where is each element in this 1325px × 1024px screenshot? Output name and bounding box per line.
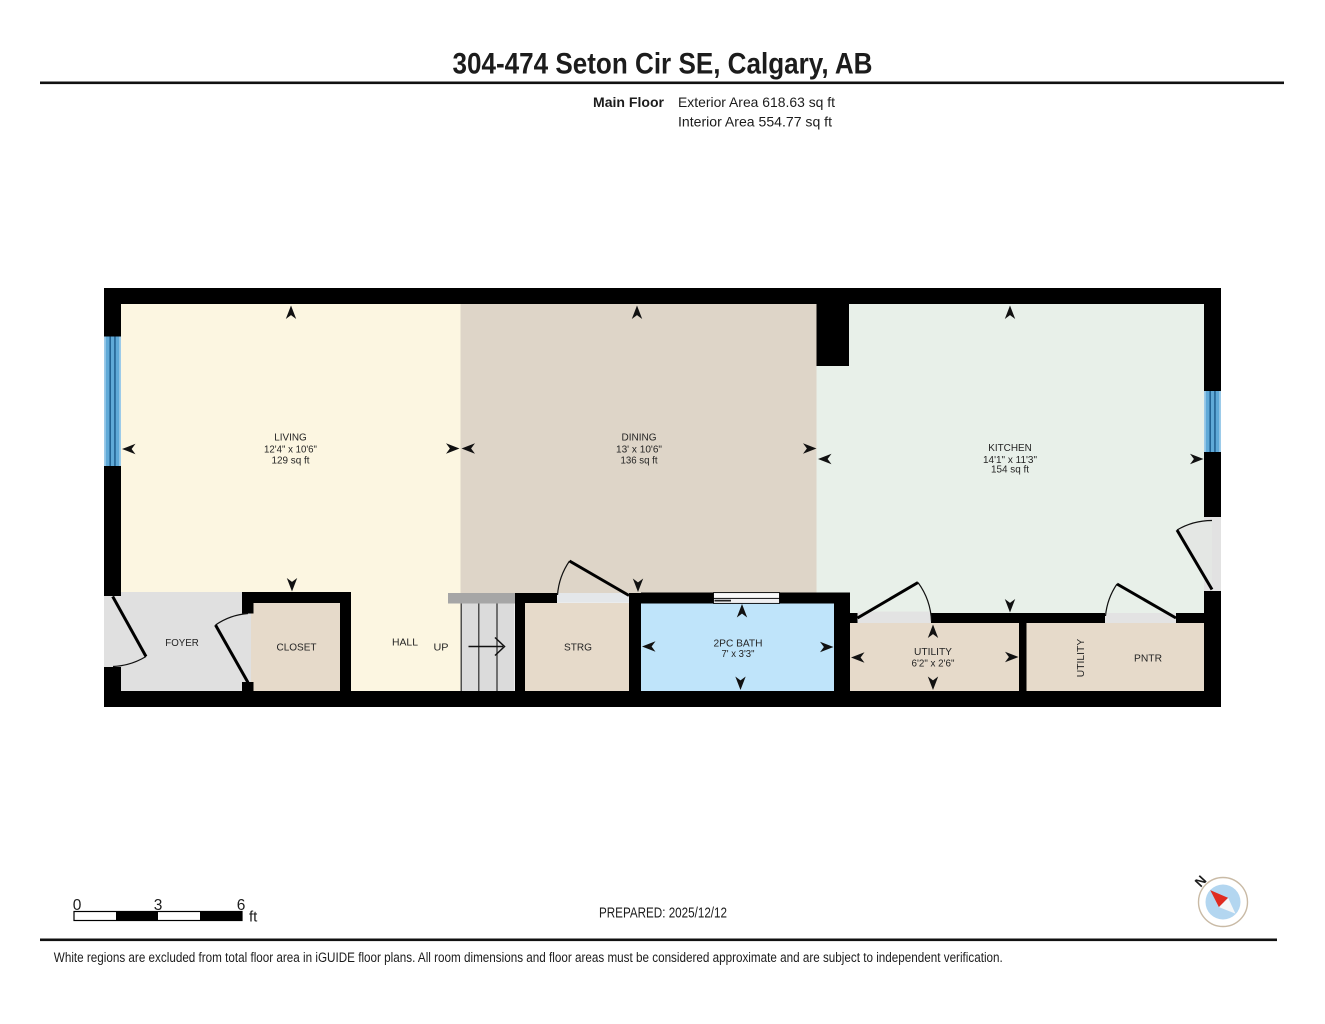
svg-text:KITCHEN: KITCHEN [988, 443, 1032, 454]
svg-text:STRG: STRG [564, 643, 592, 654]
svg-text:Main Floor: Main Floor [593, 95, 664, 111]
svg-text:Interior Area 554.77 sq ft: Interior Area 554.77 sq ft [678, 113, 832, 129]
svg-text:CLOSET: CLOSET [277, 643, 318, 654]
svg-text:PREPARED: 2025/12/12: PREPARED: 2025/12/12 [599, 905, 727, 922]
svg-text:7' x 3'3": 7' x 3'3" [722, 649, 755, 660]
svg-text:HALL: HALL [392, 638, 418, 649]
svg-text:FOYER: FOYER [165, 638, 199, 649]
svg-text:13' x 10'6": 13' x 10'6" [616, 444, 662, 455]
svg-text:6'2" x 2'6": 6'2" x 2'6" [912, 658, 955, 669]
svg-text:LIVING: LIVING [274, 432, 307, 443]
svg-text:UP: UP [434, 643, 449, 654]
svg-text:129 sq ft: 129 sq ft [272, 456, 310, 467]
svg-text:136 sq ft: 136 sq ft [621, 456, 658, 467]
svg-text:UTILITY: UTILITY [914, 647, 952, 658]
svg-text:UTILITY: UTILITY [1076, 639, 1087, 678]
svg-text:White regions are excluded fro: White regions are excluded from total fl… [54, 950, 1003, 965]
svg-text:154 sq ft: 154 sq ft [991, 465, 1029, 476]
svg-text:PNTR: PNTR [1134, 654, 1162, 665]
svg-text:ft: ft [249, 909, 258, 926]
svg-text:DINING: DINING [622, 432, 657, 443]
svg-text:304-474 Seton Cir SE, Calgary,: 304-474 Seton Cir SE, Calgary, AB [453, 48, 873, 81]
svg-text:12'4" x 10'6": 12'4" x 10'6" [264, 444, 317, 455]
svg-text:Exterior Area 618.63 sq ft: Exterior Area 618.63 sq ft [678, 94, 835, 110]
